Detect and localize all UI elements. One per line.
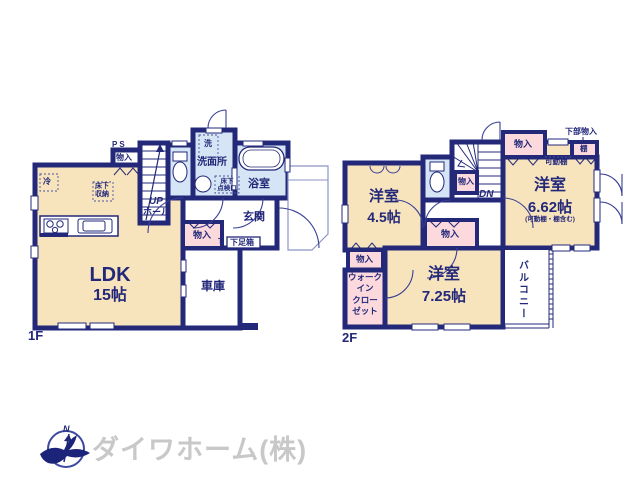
label-room662-name: 洋室 (520, 177, 580, 195)
label-closet-nook: 物入 (116, 153, 132, 162)
label-ldk-name: LDK (80, 264, 140, 287)
label-down: DN (479, 189, 493, 201)
label-room662-note: (可動棚・棚含む) (508, 216, 592, 223)
compass-logo-icon (40, 431, 90, 467)
label-up: UP (149, 196, 163, 208)
label-walk-in-closet: ウォーク イン クロー ゼット (346, 272, 384, 318)
label-floor2: 2F (342, 331, 357, 346)
label-bath: 浴室 (248, 178, 270, 191)
label-room45-name: 洋室 (356, 188, 412, 205)
label-inspection-hatch: 床下 点検口 (217, 178, 237, 193)
label-room725-size: 7.25帖 (409, 288, 479, 305)
label-lower-storage: 下部物入 (565, 127, 597, 136)
label-laundry: 洗 (204, 139, 212, 148)
label-closet-mid: 物入 (441, 229, 459, 239)
label-closet-left: 物入 (356, 255, 373, 265)
label-balcony: バルコニー (516, 260, 528, 320)
label-shelf: 棚 (580, 145, 588, 154)
label-hall: ホール (143, 207, 170, 217)
label-closet-by-stairs: 物入 (458, 177, 474, 186)
label-shoebox-t: T (218, 237, 223, 246)
label-garage: 車庫 (201, 280, 225, 294)
label-floor1: 1F (28, 329, 43, 344)
label-room662-size: 6.62帖 (515, 199, 585, 216)
label-shoebox: 下足箱 (230, 238, 254, 247)
label-room725-name: 洋室 (414, 266, 474, 284)
label-ldk-size: 15帖 (80, 287, 140, 305)
company-name: ダイワホーム(株) (92, 428, 307, 467)
label-entrance: 玄関 (243, 211, 265, 224)
floorplan-page: PS 物入 冷 床下 収納 洗 洗面所 床下 点検口 浴室 玄関 物入 T 下足… (0, 0, 640, 480)
label-closet-top-right: 物入 (514, 139, 532, 149)
compass-north-label: N (63, 424, 70, 434)
floorplan-graphics (0, 0, 640, 480)
label-closet-1f: 物入 (193, 230, 211, 240)
label-ps: PS (112, 140, 127, 149)
label-washroom: 洗面所 (197, 157, 227, 169)
label-room45-size: 4.5帖 (356, 209, 412, 225)
label-underfloor-storage: 床下 収納 (95, 183, 109, 199)
label-movable-shelf: 可動棚 (545, 158, 568, 167)
label-fridge: 冷 (43, 177, 51, 186)
